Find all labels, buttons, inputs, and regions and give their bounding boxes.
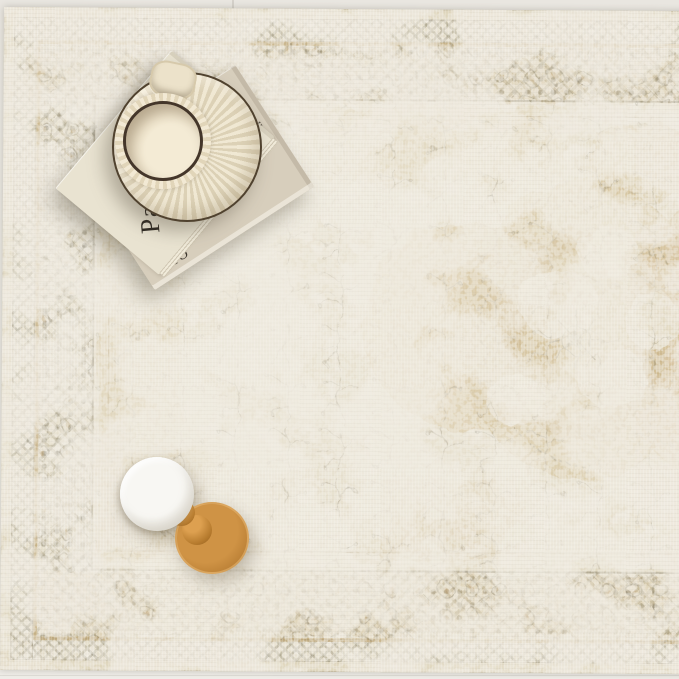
lamp-shade [120,457,194,531]
cup-and-saucer [112,72,262,222]
rug-product-photo: OIII II Pareille [0,0,679,679]
floor-edge-line [0,675,679,676]
mini-lamp [120,455,270,590]
cup-rim-and-interior [123,101,203,181]
